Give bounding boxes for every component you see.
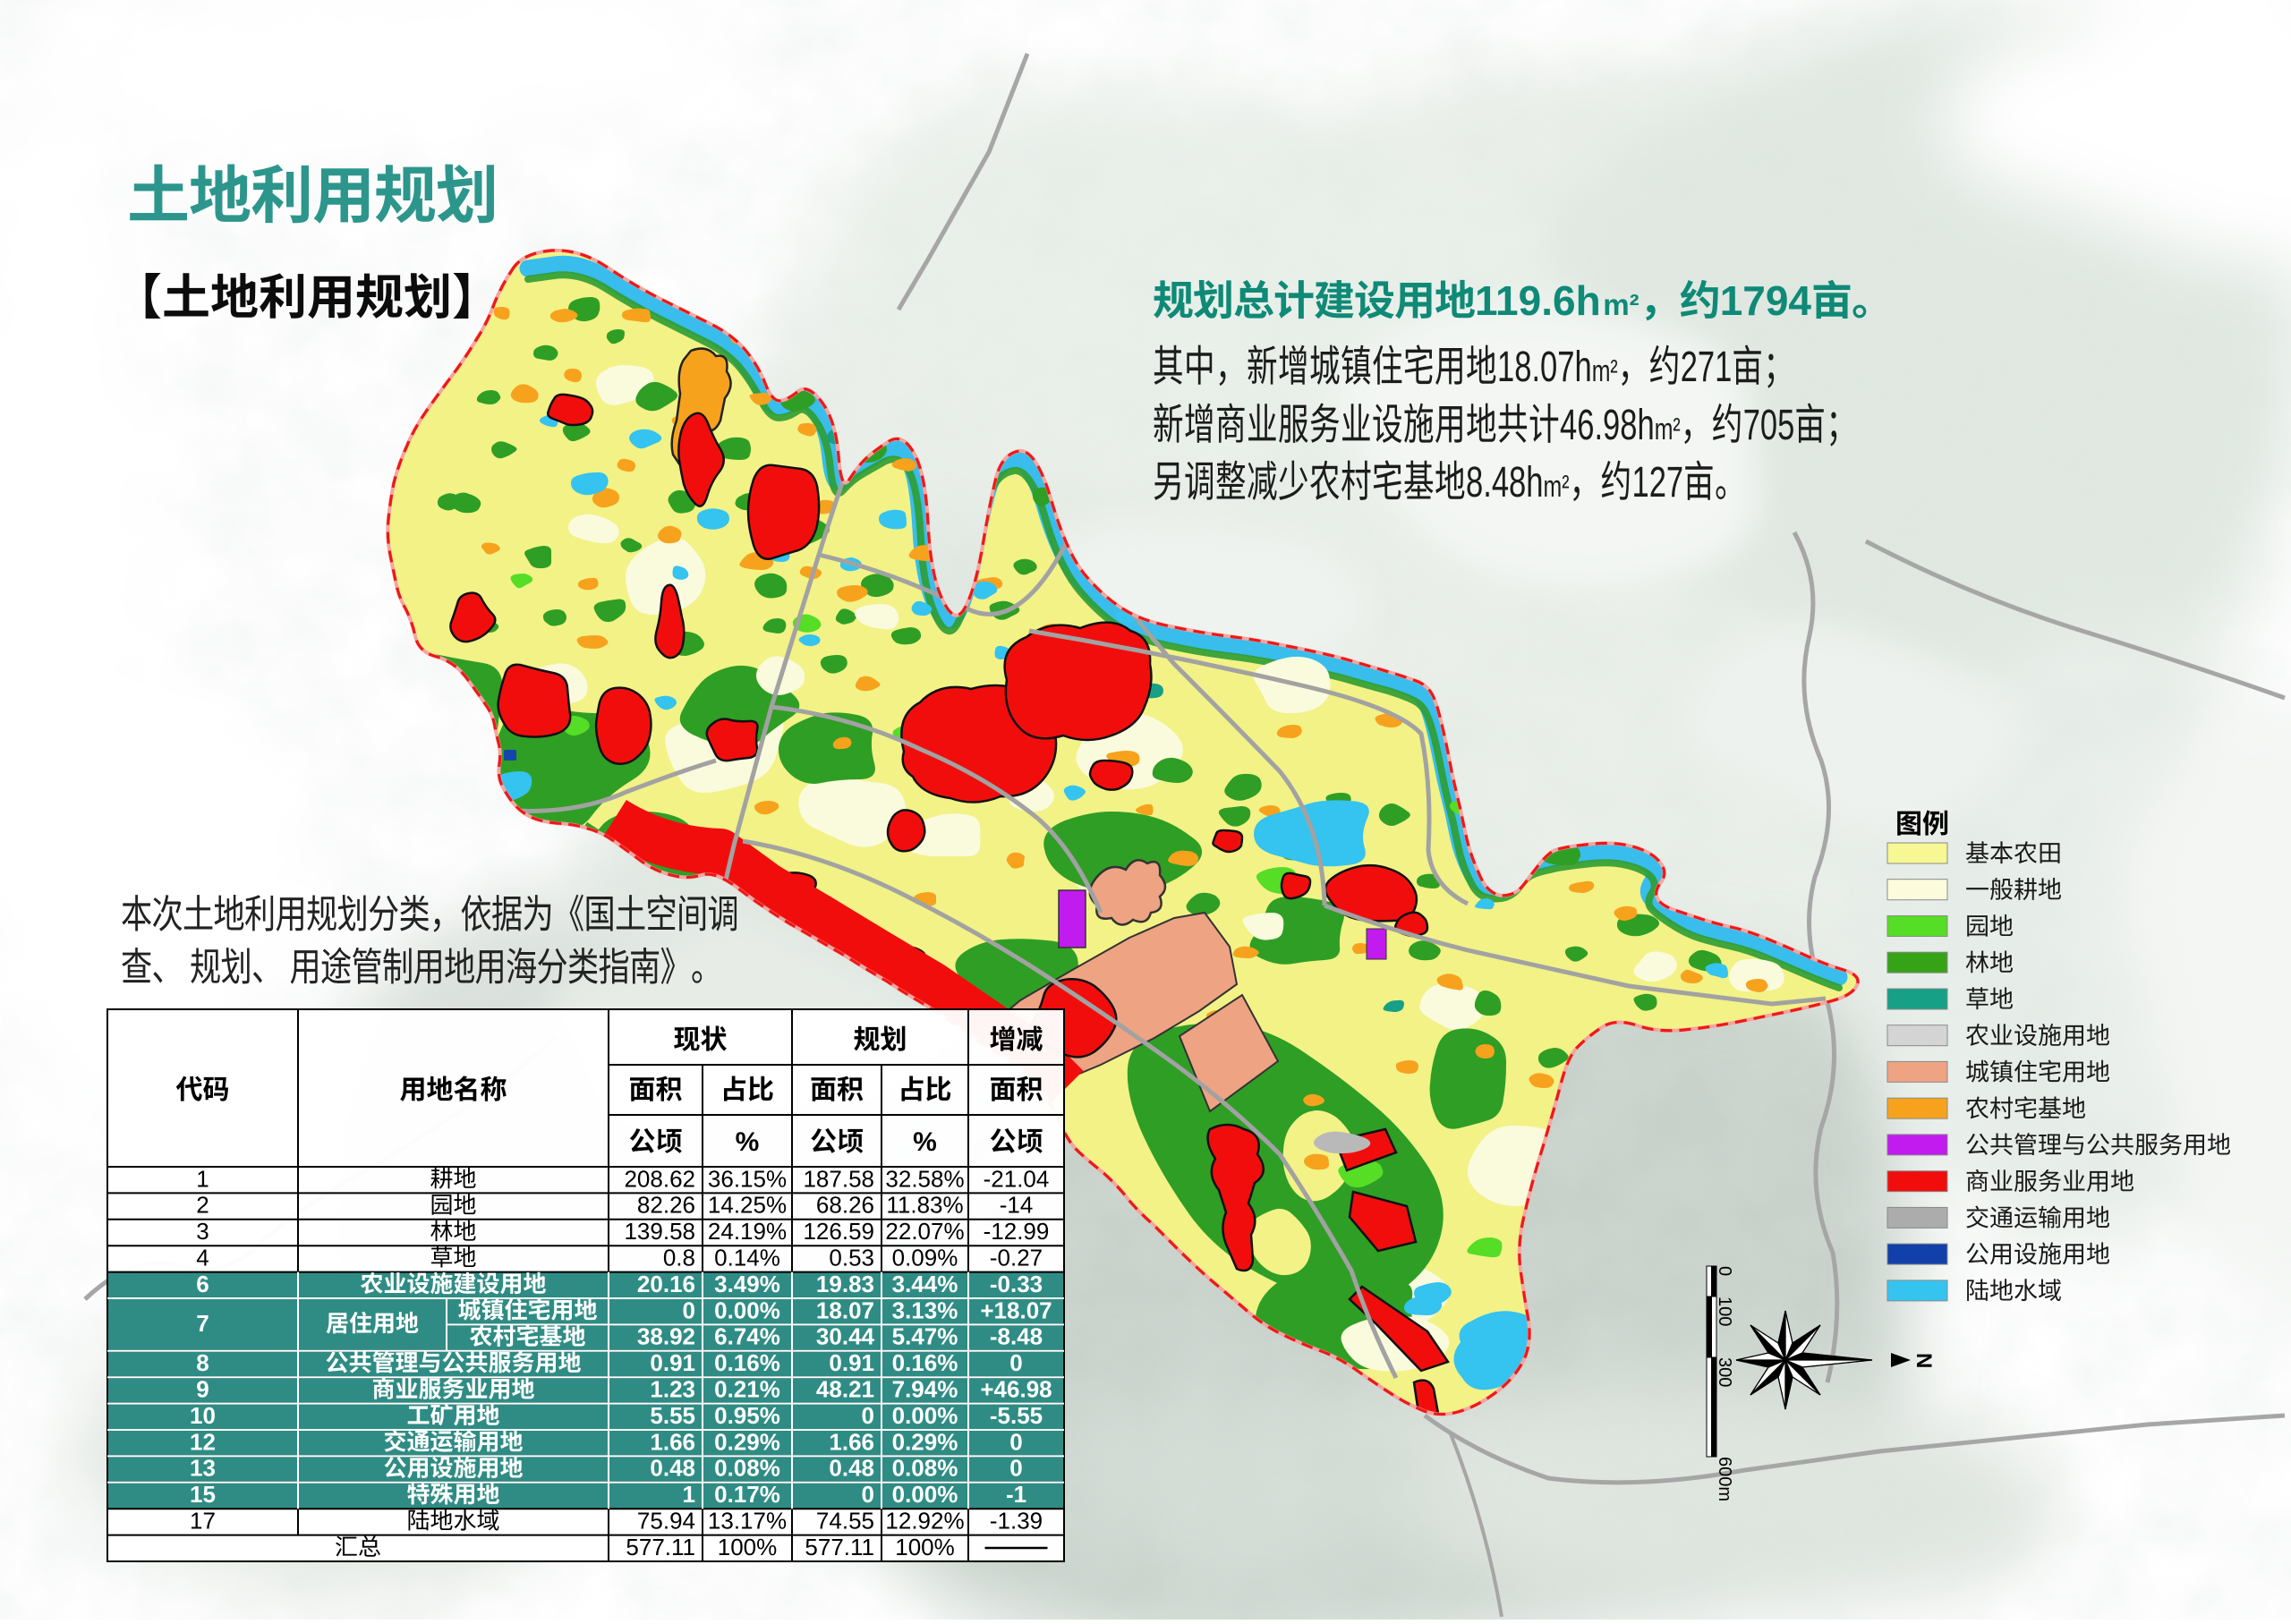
svg-text:-0.27: -0.27 [990, 1245, 1043, 1271]
svg-text:208.62: 208.62 [624, 1165, 695, 1192]
svg-text:m²: m² [1544, 470, 1570, 504]
svg-text:-0.33: -0.33 [990, 1271, 1043, 1297]
svg-text:8.48h: 8.48h [1466, 459, 1544, 506]
svg-text:1: 1 [683, 1481, 695, 1508]
svg-text:13.17%: 13.17% [708, 1508, 787, 1535]
svg-text:119.6h: 119.6h [1475, 277, 1601, 324]
svg-text:0.48: 0.48 [650, 1455, 695, 1482]
svg-text:75.94: 75.94 [637, 1508, 695, 1535]
svg-text:0.16%: 0.16% [714, 1349, 780, 1376]
svg-text:0.29%: 0.29% [714, 1428, 780, 1455]
svg-text:-21.04: -21.04 [984, 1165, 1050, 1192]
svg-text:30.44: 30.44 [816, 1323, 875, 1350]
svg-text:%: % [913, 1127, 937, 1157]
svg-text:0.21%: 0.21% [714, 1376, 780, 1403]
svg-text:74.55: 74.55 [816, 1508, 874, 1535]
svg-text:12.92%: 12.92% [885, 1508, 964, 1535]
svg-text:15: 15 [190, 1481, 216, 1508]
svg-text:-5.55: -5.55 [990, 1402, 1043, 1429]
svg-text:20.16: 20.16 [637, 1271, 695, 1297]
svg-text:100%: 100% [895, 1534, 955, 1560]
svg-text:187.58: 187.58 [803, 1165, 874, 1192]
svg-text:0.29%: 0.29% [892, 1428, 958, 1455]
svg-text:5.47%: 5.47% [892, 1323, 958, 1350]
svg-text:0.08%: 0.08% [714, 1455, 780, 1482]
svg-text:6: 6 [196, 1271, 209, 1297]
svg-text:19.83: 19.83 [816, 1271, 874, 1297]
svg-text:0.09%: 0.09% [892, 1245, 958, 1271]
svg-text:0.00%: 0.00% [892, 1402, 958, 1429]
svg-text:0.08%: 0.08% [892, 1455, 958, 1482]
svg-text:8: 8 [196, 1349, 209, 1376]
svg-text:38.92: 38.92 [637, 1323, 695, 1350]
svg-text:12: 12 [190, 1428, 216, 1455]
svg-text:-14: -14 [1000, 1192, 1034, 1219]
svg-text:577.11: 577.11 [805, 1534, 874, 1560]
svg-text:68.26: 68.26 [816, 1192, 874, 1219]
svg-text:-1.39: -1.39 [990, 1508, 1043, 1535]
svg-text:0: 0 [1715, 1266, 1734, 1276]
svg-text:N: N [1912, 1353, 1936, 1368]
svg-text:127: 127 [1632, 459, 1684, 506]
svg-text:0: 0 [862, 1481, 874, 1508]
svg-text:1: 1 [196, 1165, 209, 1192]
svg-text:0.91: 0.91 [829, 1349, 874, 1376]
svg-text:9: 9 [196, 1376, 209, 1403]
svg-text:100%: 100% [718, 1534, 778, 1560]
svg-text:11.83%: 11.83% [886, 1192, 963, 1219]
svg-text:3: 3 [196, 1218, 209, 1245]
svg-text:0: 0 [1009, 1455, 1022, 1482]
svg-text:1.66: 1.66 [650, 1428, 695, 1455]
svg-text:82.26: 82.26 [637, 1192, 695, 1219]
svg-text:0.53: 0.53 [829, 1245, 874, 1271]
svg-text:577.11: 577.11 [626, 1534, 695, 1560]
svg-text:0: 0 [1009, 1428, 1022, 1455]
svg-text:0.95%: 0.95% [714, 1402, 780, 1429]
svg-text:0: 0 [683, 1297, 695, 1323]
svg-text:0.00%: 0.00% [714, 1297, 780, 1323]
svg-text:0: 0 [862, 1402, 874, 1429]
svg-text:1.66: 1.66 [829, 1428, 874, 1455]
svg-text:m²: m² [1655, 412, 1681, 446]
svg-text:36.15%: 36.15% [708, 1165, 787, 1192]
svg-text:139.58: 139.58 [624, 1218, 695, 1245]
svg-text:0.17%: 0.17% [714, 1481, 780, 1508]
svg-text:271: 271 [1681, 344, 1733, 391]
svg-text:m²: m² [1603, 289, 1639, 322]
svg-text:0.14%: 0.14% [714, 1245, 780, 1271]
svg-text:0.91: 0.91 [650, 1349, 695, 1376]
svg-text:2: 2 [196, 1192, 209, 1219]
svg-text:-1: -1 [1006, 1481, 1026, 1508]
svg-text:18.07: 18.07 [816, 1297, 874, 1323]
svg-text:m²: m² [1592, 354, 1618, 388]
svg-text:46.98h: 46.98h [1560, 402, 1655, 449]
svg-text:4: 4 [196, 1245, 209, 1271]
svg-text:0: 0 [1009, 1349, 1022, 1376]
svg-text:-8.48: -8.48 [990, 1323, 1043, 1350]
svg-text:-12.99: -12.99 [984, 1218, 1050, 1245]
svg-text:0.8: 0.8 [663, 1245, 695, 1271]
svg-text:7: 7 [196, 1310, 209, 1337]
svg-text:24.19%: 24.19% [708, 1218, 787, 1245]
svg-text:1794: 1794 [1720, 277, 1812, 324]
svg-text:7.94%: 7.94% [892, 1376, 958, 1403]
svg-text:%: % [736, 1127, 760, 1157]
svg-text:0.48: 0.48 [829, 1455, 874, 1482]
svg-text:18.07h: 18.07h [1497, 344, 1592, 391]
svg-text:6.74%: 6.74% [714, 1323, 780, 1350]
svg-text:600m: 600m [1715, 1457, 1734, 1501]
svg-text:126.59: 126.59 [803, 1218, 874, 1245]
svg-text:48.21: 48.21 [816, 1376, 874, 1403]
svg-text:100: 100 [1715, 1297, 1734, 1326]
svg-text:+46.98: +46.98 [980, 1376, 1052, 1403]
svg-text:5.55: 5.55 [650, 1402, 695, 1429]
svg-text:17: 17 [190, 1508, 216, 1535]
svg-text:14.25%: 14.25% [708, 1192, 787, 1219]
svg-text:3.49%: 3.49% [714, 1271, 780, 1297]
svg-text:32.58%: 32.58% [885, 1165, 964, 1192]
svg-text:705: 705 [1743, 402, 1795, 449]
svg-text:300: 300 [1715, 1357, 1734, 1387]
svg-text:3.13%: 3.13% [892, 1297, 958, 1323]
svg-text:0.16%: 0.16% [892, 1349, 958, 1376]
svg-text:22.07%: 22.07% [885, 1218, 964, 1245]
svg-text:10: 10 [190, 1402, 216, 1429]
svg-text:3.44%: 3.44% [892, 1271, 958, 1297]
svg-text:13: 13 [190, 1455, 216, 1482]
svg-text:0.00%: 0.00% [892, 1481, 958, 1508]
svg-text:1.23: 1.23 [650, 1376, 695, 1403]
svg-text:+18.07: +18.07 [980, 1297, 1052, 1323]
